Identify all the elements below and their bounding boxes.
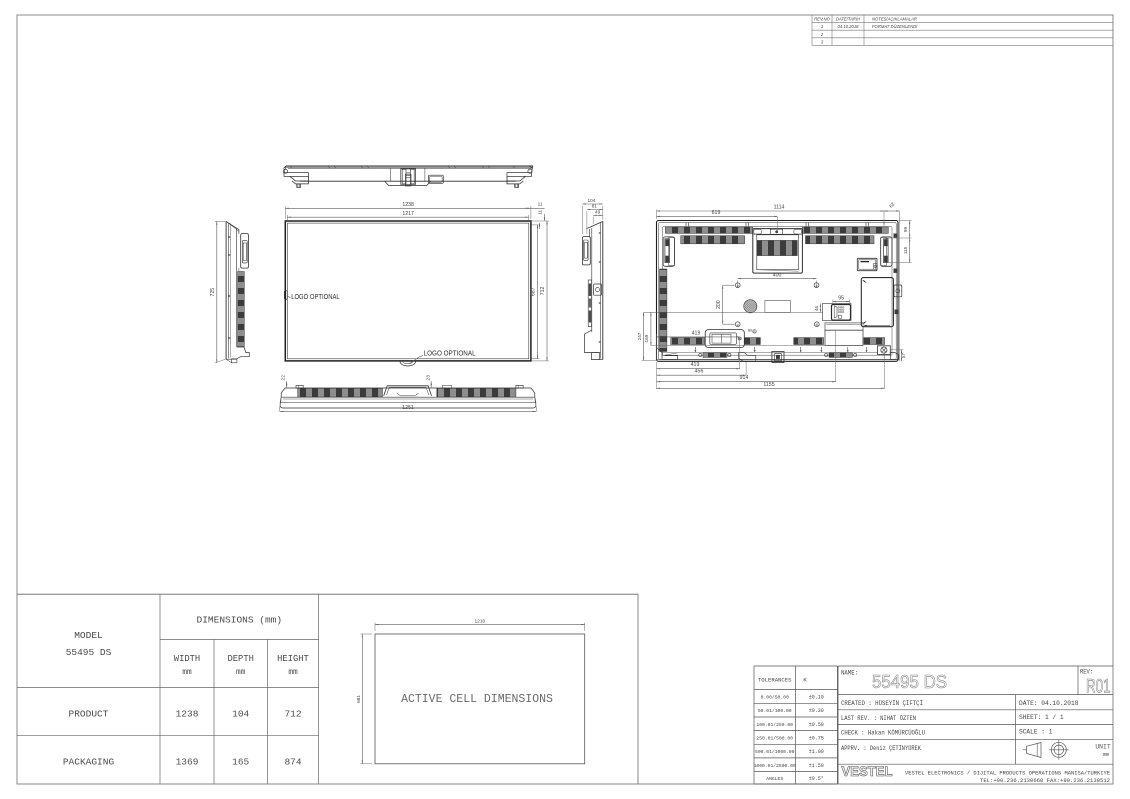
svg-text:11: 11 bbox=[538, 209, 543, 214]
svg-text:±0.50: ±0.50 bbox=[809, 722, 824, 728]
svg-text:TEL:+90.236.2130660 FAX:+90.23: TEL:+90.236.2130660 FAX:+90.236.2130512 bbox=[980, 777, 1110, 784]
svg-text:55495 DS: 55495 DS bbox=[872, 671, 947, 692]
svg-text:400: 400 bbox=[773, 272, 782, 278]
svg-text:PACKAGING: PACKAGING bbox=[63, 757, 115, 768]
svg-text:1369: 1369 bbox=[176, 757, 199, 768]
svg-text:200: 200 bbox=[716, 300, 722, 309]
svg-text:115: 115 bbox=[903, 246, 908, 254]
svg-text:456: 456 bbox=[695, 369, 704, 375]
svg-text:NAME:: NAME: bbox=[841, 670, 858, 677]
svg-text:23: 23 bbox=[425, 375, 431, 381]
svg-text:712: 712 bbox=[540, 287, 546, 296]
svg-text:95: 95 bbox=[838, 295, 844, 301]
svg-text:CHECK : Hakan KÖMÜRCÜOĞLU: CHECK : Hakan KÖMÜRCÜOĞLU bbox=[841, 730, 925, 737]
svg-text:WIDTH: WIDTH bbox=[174, 654, 200, 664]
svg-text:mm: mm bbox=[236, 669, 246, 677]
svg-text:ANGLES: ANGLES bbox=[766, 776, 783, 782]
svg-text:±0.10: ±0.10 bbox=[809, 694, 824, 700]
svg-text:874: 874 bbox=[284, 757, 301, 768]
svg-text:DATE/TARİH: DATE/TARİH bbox=[836, 17, 861, 22]
svg-text:104: 104 bbox=[232, 709, 249, 720]
svg-text:APPRV. : Deniz ÇETİNYÜREK: APPRV. : Deniz ÇETİNYÜREK bbox=[841, 745, 921, 752]
svg-text:SCALE : 1: SCALE : 1 bbox=[1019, 729, 1053, 736]
svg-text:LOGO OPTIONAL: LOGO OPTIONAL bbox=[291, 292, 340, 301]
svg-text:ACTIVE CELL DIMENSIONS: ACTIVE CELL DIMENSIONS bbox=[401, 693, 553, 706]
svg-text:±0.5°: ±0.5° bbox=[809, 776, 824, 782]
svg-text:500.01/1000.00: 500.01/1000.00 bbox=[755, 749, 795, 755]
svg-text:619: 619 bbox=[712, 210, 721, 216]
svg-text:mm: mm bbox=[182, 669, 192, 677]
svg-text:mm: mm bbox=[288, 669, 298, 677]
svg-text:50.01/100.00: 50.01/100.00 bbox=[758, 708, 792, 714]
svg-text:1000.01/2500.00: 1000.01/2500.00 bbox=[754, 763, 796, 769]
svg-text:169: 169 bbox=[644, 334, 649, 342]
svg-text:TOLERANCES: TOLERANCES bbox=[758, 677, 792, 684]
svg-text:250.01/500.00: 250.01/500.00 bbox=[756, 735, 793, 741]
svg-text:681: 681 bbox=[356, 695, 362, 703]
svg-text:VESTEL ELECTRONICS / DIJITAL P: VESTEL ELECTRONICS / DIJITAL PRODUCTS OP… bbox=[905, 770, 1111, 777]
svg-text:247: 247 bbox=[637, 332, 642, 340]
svg-text:100.01/250.00: 100.01/250.00 bbox=[756, 722, 793, 728]
svg-text:419: 419 bbox=[691, 362, 700, 368]
svg-text:±1.50: ±1.50 bbox=[809, 763, 824, 769]
svg-text:SHEET: 1 / 1: SHEET: 1 / 1 bbox=[1019, 714, 1064, 721]
svg-text:1210: 1210 bbox=[475, 618, 486, 624]
svg-text:±1.00: ±1.00 bbox=[809, 749, 824, 755]
svg-text:±0.75: ±0.75 bbox=[809, 735, 824, 741]
svg-text:1238: 1238 bbox=[176, 709, 199, 720]
svg-text:419: 419 bbox=[692, 330, 701, 336]
svg-text:B6: B6 bbox=[748, 329, 752, 333]
svg-text:NOTES/AÇIKLAMALAR: NOTES/AÇIKLAMALAR bbox=[872, 17, 917, 22]
svg-text:DEPTH: DEPTH bbox=[227, 654, 253, 664]
svg-text:687: 687 bbox=[531, 287, 537, 296]
svg-text:LAST REV. : NIHAT ÖZTEN: LAST REV. : NIHAT ÖZTEN bbox=[841, 715, 916, 722]
svg-text:DATE: 04.10.2018: DATE: 04.10.2018 bbox=[1019, 700, 1079, 707]
svg-text:0.00/50.00: 0.00/50.00 bbox=[761, 694, 789, 700]
svg-text:165: 165 bbox=[232, 757, 249, 768]
svg-text:81: 81 bbox=[592, 204, 598, 209]
svg-text:55495 DS: 55495 DS bbox=[66, 647, 112, 658]
svg-text:R01: R01 bbox=[1086, 677, 1111, 698]
svg-text:CREATED : HÜSEYİN ÇİFTÇİ: CREATED : HÜSEYİN ÇİFTÇİ bbox=[841, 700, 923, 707]
svg-text:MODEL: MODEL bbox=[74, 630, 103, 641]
svg-text:B: B bbox=[753, 330, 755, 334]
svg-text:LOGO OPTIONAL: LOGO OPTIONAL bbox=[424, 348, 476, 357]
svg-text:725: 725 bbox=[210, 288, 216, 297]
svg-text:⌀: ⌀ bbox=[737, 323, 739, 327]
svg-text:04.10.2018: 04.10.2018 bbox=[838, 24, 860, 29]
svg-text:1217: 1217 bbox=[402, 211, 414, 217]
svg-text:1114: 1114 bbox=[774, 205, 785, 211]
svg-text:57: 57 bbox=[901, 353, 906, 358]
svg-text:46: 46 bbox=[814, 306, 819, 311]
svg-text:PRODUCT: PRODUCT bbox=[69, 709, 109, 720]
svg-text:DIMENSIONS (mm): DIMENSIONS (mm) bbox=[197, 615, 283, 626]
svg-text:1155: 1155 bbox=[763, 382, 774, 388]
svg-text:⌀: ⌀ bbox=[737, 284, 739, 288]
svg-text:22: 22 bbox=[280, 375, 286, 381]
svg-text:UNIT: UNIT bbox=[1095, 744, 1111, 751]
svg-text:±0.30: ±0.30 bbox=[809, 708, 824, 714]
svg-text:VESTEL: VESTEL bbox=[842, 763, 893, 779]
svg-text:104: 104 bbox=[587, 198, 595, 203]
svg-text:REV:: REV: bbox=[1080, 669, 1093, 676]
svg-text:⌀: ⌀ bbox=[815, 284, 817, 288]
svg-text:HEIGHT: HEIGHT bbox=[277, 654, 309, 664]
svg-text:712: 712 bbox=[284, 709, 301, 720]
svg-text:49: 49 bbox=[595, 209, 601, 214]
svg-text:FORMAT DÜZENLENDİ: FORMAT DÜZENLENDİ bbox=[872, 24, 918, 29]
svg-text:mm: mm bbox=[1103, 752, 1109, 758]
svg-text:1238: 1238 bbox=[402, 202, 414, 208]
svg-text:99: 99 bbox=[903, 227, 908, 233]
svg-text:REV.NO: REV.NO bbox=[814, 17, 830, 22]
svg-text:1: 1 bbox=[821, 24, 823, 29]
svg-text:11: 11 bbox=[538, 201, 543, 206]
svg-text:1251: 1251 bbox=[402, 405, 414, 411]
svg-text:914: 914 bbox=[740, 375, 749, 381]
